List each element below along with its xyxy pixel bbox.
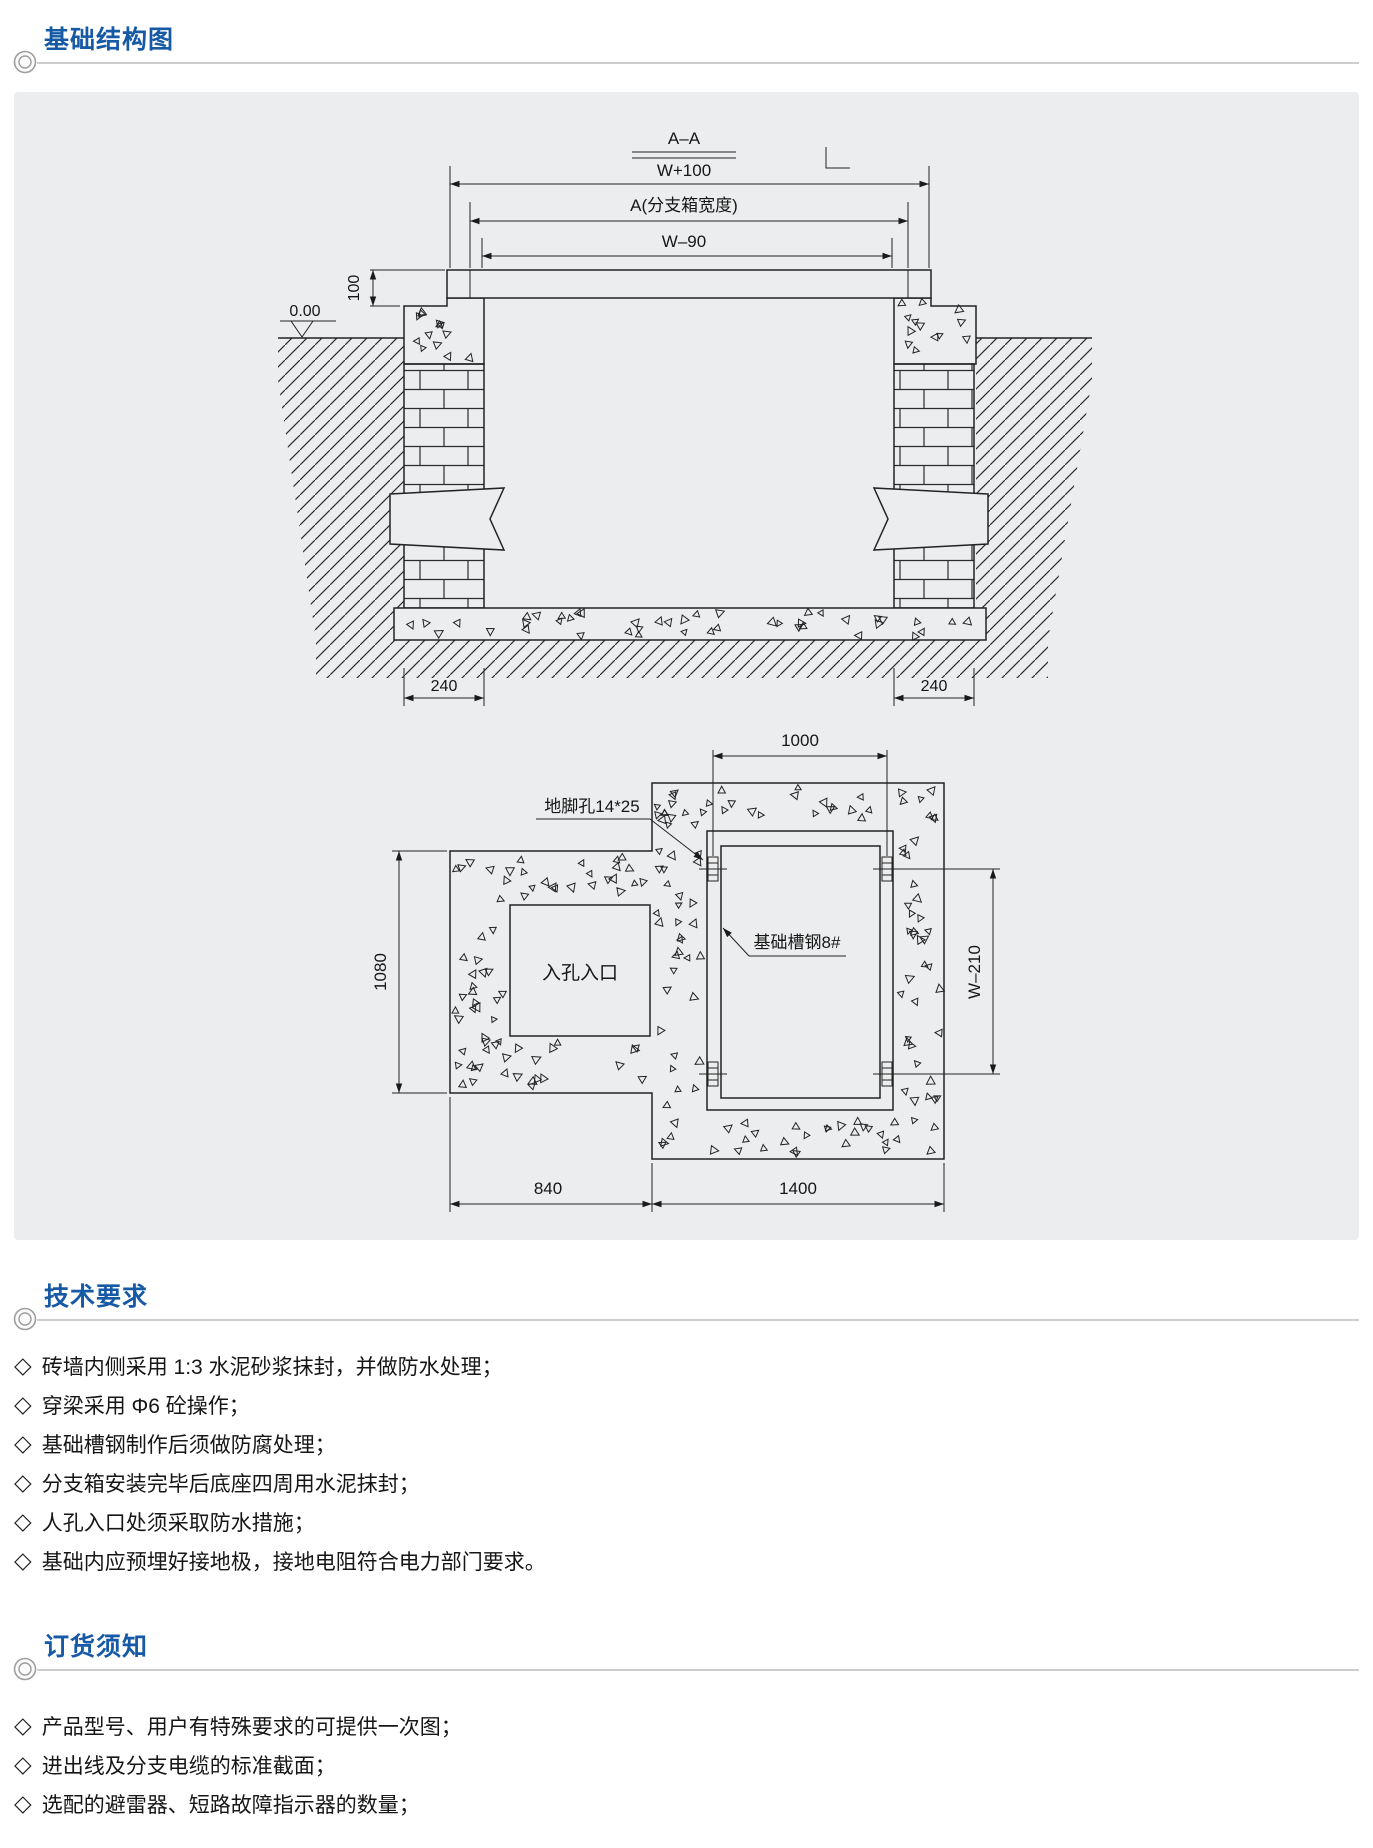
cover-slab — [447, 270, 931, 298]
list-item-text: 进出线及分支电缆的标准截面； — [42, 1750, 336, 1780]
soil-hatch-right — [976, 338, 1092, 640]
list-item: ◇基础槽钢制作后须做防腐处理； — [0, 1424, 1373, 1463]
list-item: ◇穿梁采用 Φ6 砼操作； — [0, 1385, 1373, 1424]
dim-label-840: 840 — [534, 1179, 562, 1198]
anchor-bolt — [699, 1062, 727, 1086]
section-bullet-icon — [11, 1655, 39, 1683]
plan-view — [450, 783, 944, 1159]
diamond-bullet-icon: ◇ — [14, 1549, 32, 1572]
dim-label-240-left: 240 — [431, 678, 458, 695]
list-item: ◇产品型号、用户有特殊要求的可提供一次图； — [0, 1706, 1373, 1745]
diamond-bullet-icon: ◇ — [14, 1432, 32, 1455]
list-item: ◇基础内应预埋好接地极，接地电阻符合电力部门要求。 — [0, 1541, 1373, 1580]
list-item-text: 基础槽钢制作后须做防腐处理； — [42, 1429, 336, 1459]
page-title: 基础结构图 — [44, 20, 174, 56]
order-notes-list: ◇产品型号、用户有特殊要求的可提供一次图； ◇进出线及分支电缆的标准截面； ◇选… — [0, 1706, 1373, 1823]
list-item-text: 分支箱安装完毕后底座四周用水泥抹封； — [42, 1468, 420, 1498]
list-item: ◇人孔入口处须采取防水措施； — [0, 1502, 1373, 1541]
diamond-bullet-icon: ◇ — [14, 1354, 32, 1377]
level-mark-icon — [291, 321, 313, 337]
section-corner-mark — [826, 147, 850, 168]
dim-label-w-minus-90: W–90 — [662, 232, 706, 251]
list-item-text: 穿梁采用 Φ6 砼操作； — [42, 1390, 250, 1420]
list-item-text: 人孔入口处须采取防水措施； — [42, 1507, 315, 1537]
dim-label-box-width: A(分支箱宽度) — [630, 196, 738, 215]
order-notes-title: 订货须知 — [44, 1627, 148, 1663]
diamond-bullet-icon: ◇ — [14, 1471, 32, 1494]
list-item-text: 砖墙内侧采用 1:3 水泥砂浆抹封，并做防水处理； — [42, 1351, 503, 1381]
tech-requirements-title: 技术要求 — [44, 1277, 148, 1313]
section-divider — [37, 1319, 1359, 1321]
concrete-stipple — [407, 299, 972, 1158]
through-beam-left — [390, 488, 504, 550]
list-item-text: 产品型号、用户有特殊要求的可提供一次图； — [42, 1711, 462, 1741]
brick-wall-right — [894, 364, 974, 608]
dim-label-240-right: 240 — [921, 678, 948, 695]
concrete-shoulder-right — [894, 298, 976, 364]
brick-wall-left — [404, 364, 484, 608]
channel-frame-outer — [707, 831, 893, 1110]
dim-label-100: 100 — [346, 275, 363, 302]
section-header-tech: 技术要求 — [0, 1277, 1373, 1339]
section-bullet-icon — [11, 1305, 39, 1333]
dim-label-w-plus-100: W+100 — [657, 161, 711, 180]
dim-label-w-minus-210: W–210 — [965, 945, 984, 999]
list-item-text: 基础内应预埋好接地极，接地电阻符合电力部门要求。 — [42, 1546, 546, 1576]
manhole-label: 入孔入口 — [542, 962, 618, 984]
section-divider — [37, 1669, 1359, 1671]
diamond-bullet-icon: ◇ — [14, 1393, 32, 1416]
list-item: ◇选配的避雷器、短路故障指示器的数量； — [0, 1784, 1373, 1823]
through-beam-right — [874, 488, 988, 550]
anchor-hole-label: 地脚孔14*25 — [544, 797, 639, 816]
diamond-bullet-icon: ◇ — [14, 1753, 32, 1776]
section-bullet-icon — [11, 48, 39, 76]
section-divider — [37, 62, 1359, 64]
section-title-aa: A–A — [668, 129, 701, 148]
diamond-bullet-icon: ◇ — [14, 1510, 32, 1533]
foundation-structure-diagram: A–A W+100 A(分支箱宽度) W–90 100 0.00 240 — [14, 92, 1359, 1240]
dim-label-1000: 1000 — [781, 731, 819, 750]
list-item: ◇砖墙内侧采用 1:3 水泥砂浆抹封，并做防水处理； — [0, 1346, 1373, 1385]
section-header-structure: 基础结构图 — [0, 20, 1373, 82]
dim-label-1400: 1400 — [779, 1179, 817, 1198]
diamond-bullet-icon: ◇ — [14, 1792, 32, 1815]
anchor-bolt — [699, 857, 727, 881]
list-item-text: 选配的避雷器、短路故障指示器的数量； — [42, 1789, 420, 1819]
list-item: ◇分支箱安装完毕后底座四周用水泥抹封； — [0, 1463, 1373, 1502]
anchor-bolt — [873, 1062, 901, 1086]
tech-requirements-list: ◇砖墙内侧采用 1:3 水泥砂浆抹封，并做防水处理； ◇穿梁采用 Φ6 砼操作；… — [0, 1346, 1373, 1580]
channel-frame-inner — [721, 846, 880, 1098]
channel-steel-label: 基础槽钢8# — [754, 933, 841, 952]
anchor-bolt — [873, 857, 901, 881]
bottom-slab — [394, 608, 986, 640]
diamond-bullet-icon: ◇ — [14, 1714, 32, 1737]
dim-label-1080: 1080 — [371, 953, 390, 991]
soil-hatch-left — [278, 338, 404, 640]
foundation-outline — [450, 783, 944, 1159]
soil-hatch-bottom — [316, 640, 1048, 678]
section-header-order: 订货须知 — [0, 1627, 1373, 1689]
list-item: ◇进出线及分支电缆的标准截面； — [0, 1745, 1373, 1784]
diagram-panel: A–A W+100 A(分支箱宽度) W–90 100 0.00 240 — [14, 92, 1359, 1240]
level-mark-label: 0.00 — [289, 303, 320, 320]
